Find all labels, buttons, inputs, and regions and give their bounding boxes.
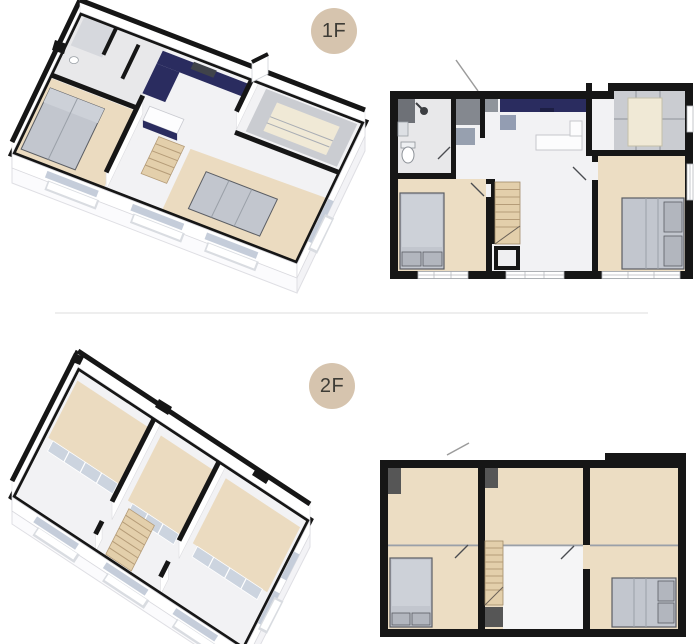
floorplan-1f-2d-image [388, 56, 695, 282]
floor-badge-2f: 2F [309, 363, 355, 409]
wall-b-2f-plan [583, 468, 590, 629]
bedroom-br-1f-plan [592, 156, 685, 271]
bedroom-bl-1f-plan [398, 179, 492, 271]
wall-a-2f-plan [478, 468, 485, 629]
staircase-1f-plan [491, 179, 520, 268]
floor-badge-2f-label: 2F [320, 375, 344, 398]
floorplan-2f-3d-image [0, 339, 335, 644]
floor-badge-1f-label: 1F [322, 20, 346, 43]
floorplan-2f-2d-image [375, 432, 695, 644]
annotation-line-1f [456, 60, 478, 91]
floor-badge-1f: 1F [311, 8, 357, 54]
section-divider [55, 312, 648, 314]
annotation-line-2f [447, 443, 469, 455]
bathroom-1f-plan [390, 99, 456, 179]
floorplan-viewer: 1F [0, 0, 695, 644]
